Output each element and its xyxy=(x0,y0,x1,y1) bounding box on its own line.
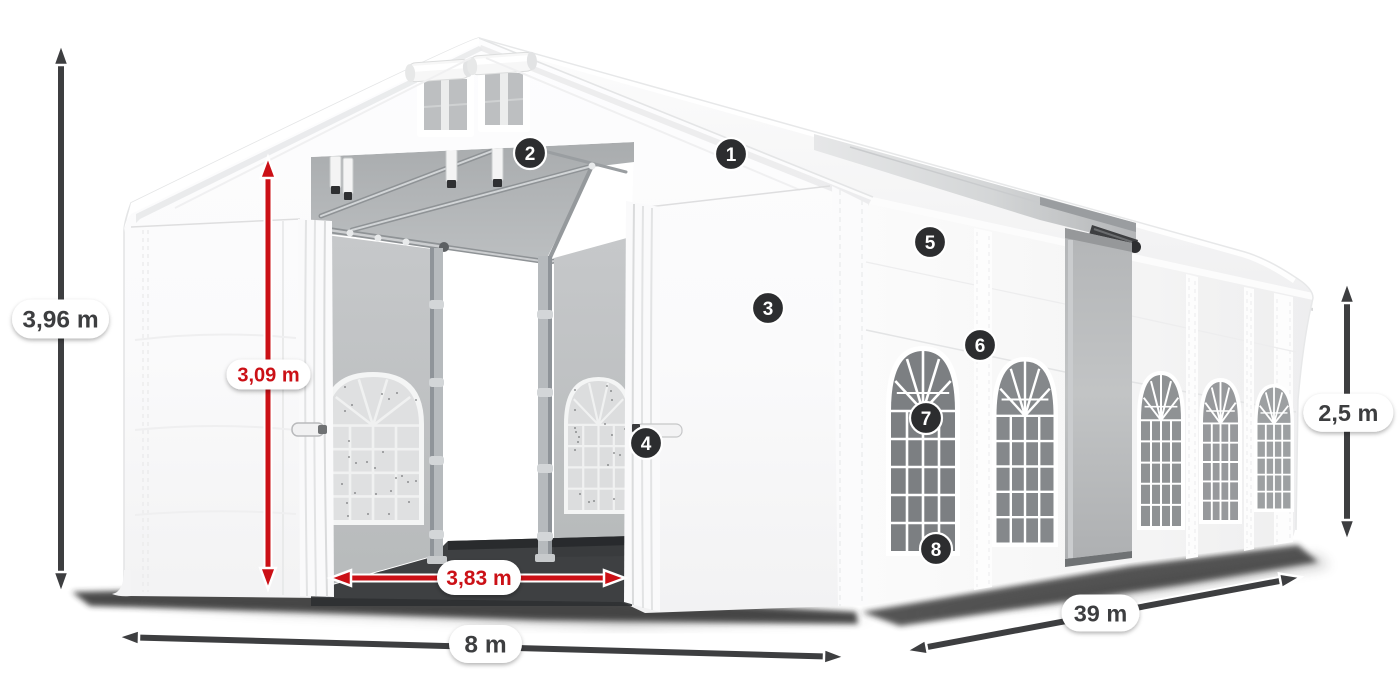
svg-text:5: 5 xyxy=(925,233,936,254)
svg-text:8: 8 xyxy=(931,540,942,561)
svg-text:3: 3 xyxy=(763,299,774,320)
svg-text:2: 2 xyxy=(525,144,536,165)
svg-text:3,96 m: 3,96 m xyxy=(22,307,98,334)
svg-text:2,5 m: 2,5 m xyxy=(1318,400,1378,426)
svg-text:1: 1 xyxy=(726,145,737,166)
svg-text:8 m: 8 m xyxy=(464,632,506,659)
svg-text:4: 4 xyxy=(641,434,652,455)
svg-text:3,09 m: 3,09 m xyxy=(237,365,299,387)
svg-text:7: 7 xyxy=(921,409,932,430)
svg-text:39 m: 39 m xyxy=(1074,600,1128,626)
svg-text:3,83 m: 3,83 m xyxy=(446,567,511,590)
svg-text:6: 6 xyxy=(975,336,986,357)
